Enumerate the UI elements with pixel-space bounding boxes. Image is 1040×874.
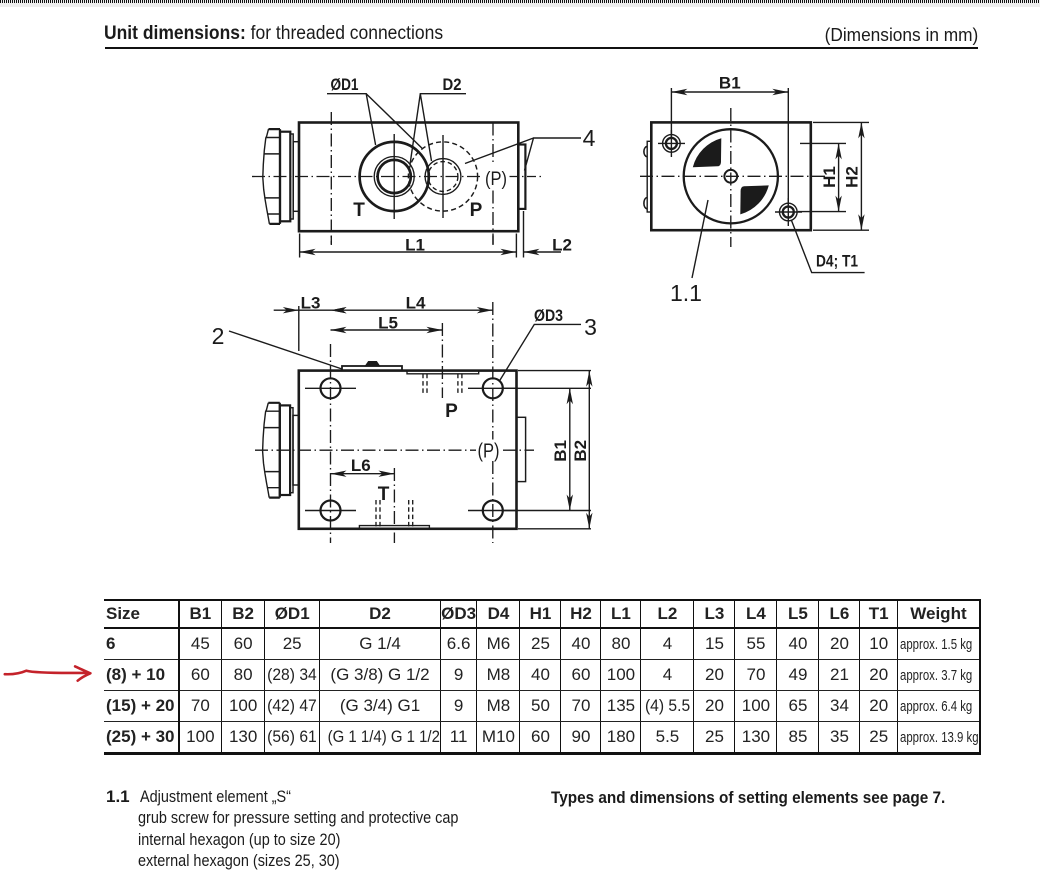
svg-text:D4; T1: D4; T1 bbox=[816, 252, 858, 271]
svg-text:4: 4 bbox=[583, 125, 596, 151]
svg-text:P: P bbox=[470, 200, 483, 221]
svg-text:H2: H2 bbox=[843, 166, 862, 188]
svg-text:ØD3: ØD3 bbox=[534, 306, 563, 325]
svg-text:B1: B1 bbox=[719, 74, 741, 93]
svg-text:B2: B2 bbox=[571, 440, 590, 462]
svg-text:(P): (P) bbox=[485, 168, 507, 190]
svg-text:T: T bbox=[378, 484, 390, 505]
svg-text:L4: L4 bbox=[406, 294, 426, 313]
svg-text:3: 3 bbox=[584, 314, 597, 340]
svg-text:1.1: 1.1 bbox=[670, 280, 702, 306]
svg-text:T: T bbox=[353, 200, 365, 221]
svg-text:D2: D2 bbox=[443, 75, 462, 94]
svg-text:B1: B1 bbox=[551, 440, 570, 462]
svg-text:P: P bbox=[445, 401, 458, 422]
svg-text:2: 2 bbox=[212, 323, 225, 349]
svg-text:L2: L2 bbox=[552, 236, 572, 255]
svg-text:(P): (P) bbox=[478, 441, 500, 463]
svg-text:L3: L3 bbox=[301, 294, 321, 313]
svg-text:L6: L6 bbox=[351, 456, 371, 475]
svg-text:L1: L1 bbox=[405, 236, 425, 255]
svg-text:L5: L5 bbox=[378, 314, 398, 333]
svg-text:ØD1: ØD1 bbox=[331, 75, 359, 94]
svg-text:H1: H1 bbox=[820, 166, 839, 188]
